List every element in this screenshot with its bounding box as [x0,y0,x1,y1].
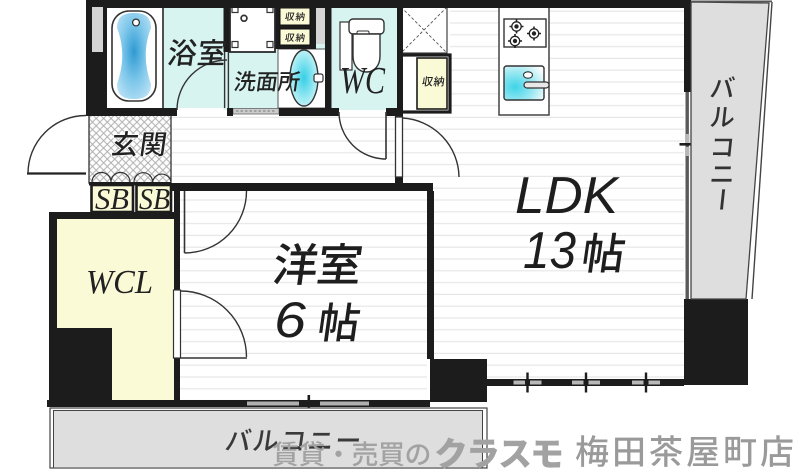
svg-text:6: 6 [274,292,306,348]
svg-text:LDK: LDK [515,167,620,225]
svg-text:WCL: WCL [86,264,153,301]
svg-text:13: 13 [523,222,576,280]
svg-text:WC: WC [340,60,386,102]
svg-text:SB: SB [139,181,170,216]
svg-text:SB: SB [95,181,129,216]
